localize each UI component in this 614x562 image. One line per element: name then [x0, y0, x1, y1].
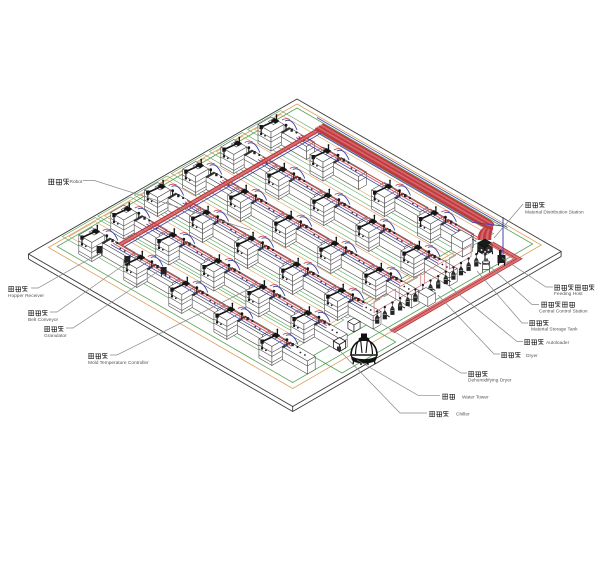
svg-text:Material Storage Tank: Material Storage Tank: [531, 327, 578, 333]
svg-text:Granulator: Granulator: [44, 333, 67, 339]
svg-text:Water Tower: Water Tower: [462, 395, 489, 401]
svg-text:Central Control Station: Central Control Station: [539, 309, 588, 315]
svg-text:Feeding Host: Feeding Host: [554, 291, 583, 297]
svg-text:Mold Temperature Controller: Mold Temperature Controller: [88, 360, 149, 366]
svg-text:Dehumidifying Dryer: Dehumidifying Dryer: [468, 378, 512, 384]
svg-text:Material Distribution Station: Material Distribution Station: [525, 210, 584, 216]
svg-text:Autoloader: Autoloader: [546, 340, 570, 346]
svg-text:Dryer: Dryer: [526, 353, 538, 359]
svg-text:Hopper Receiver: Hopper Receiver: [8, 293, 44, 299]
svg-text:Belt Conveyor: Belt Conveyor: [28, 317, 59, 323]
svg-text:Chiller: Chiller: [456, 412, 470, 418]
svg-text:Robot: Robot: [70, 179, 83, 185]
